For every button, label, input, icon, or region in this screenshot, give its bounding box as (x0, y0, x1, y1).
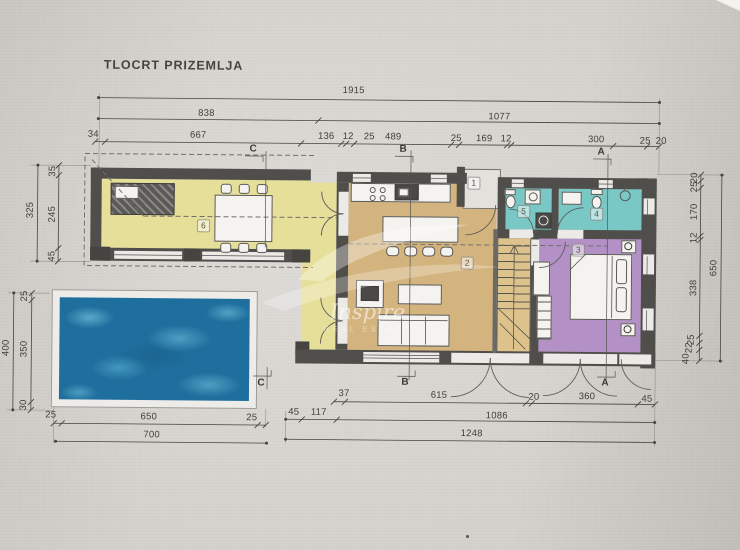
kitchen-sink-basin (399, 188, 409, 196)
dim-label: 20 (528, 393, 539, 403)
dim-label: 667 (190, 131, 207, 141)
toilet-tank (591, 189, 603, 195)
dim-label: 40 (681, 353, 691, 364)
window (431, 175, 447, 183)
section-marker-b-top: B (399, 144, 406, 155)
wing-window-1 (114, 251, 182, 260)
dim-label: 489 (385, 132, 402, 142)
toilet-bowl (506, 195, 516, 208)
dim-label: 45 (47, 251, 57, 262)
dim-label: 169 (476, 134, 493, 144)
watermark-script-text: Inspire (330, 300, 405, 325)
dim-label: 350 (20, 341, 30, 358)
outdoor-sink (115, 186, 139, 199)
column (90, 247, 110, 261)
dim-label: 25 (20, 290, 30, 301)
dim-label: 650 (140, 412, 157, 422)
stairs-treads (497, 237, 532, 309)
door-opening (557, 230, 583, 239)
room-label-3: 3 (572, 244, 585, 257)
section-marker-b-bottom: B (401, 377, 408, 388)
dim-label: 22 (685, 342, 695, 353)
room-label-2: 2 (461, 257, 474, 270)
dim-label: 25 (246, 413, 257, 423)
door-opening (543, 354, 617, 365)
dim-label: 615 (431, 391, 448, 401)
dining-chair (257, 184, 268, 194)
dim-label: 20 (656, 137, 667, 147)
dim-label: 25 (640, 137, 651, 147)
photo-corner-fold (716, 0, 740, 11)
window (643, 254, 654, 274)
room-label-1: 1 (467, 177, 480, 190)
dim-label: 650 (709, 260, 719, 277)
window (643, 308, 654, 330)
dim-label: 300 (588, 135, 605, 145)
dim-label: 12 (690, 232, 700, 243)
dim-label: 25 (45, 410, 56, 420)
door-opening (451, 353, 529, 364)
dining-chair (238, 243, 249, 253)
dim-label: 1077 (488, 112, 510, 122)
dim-label: 25 (451, 134, 462, 144)
bath-divider-wall (551, 187, 558, 234)
plan-title: TLOCRT PRIZEMLJA (104, 58, 244, 73)
dim-label: 30 (19, 399, 29, 410)
section-marker-a-top: A (597, 146, 604, 157)
dim-label: 12 (501, 134, 512, 144)
dim-label: 245 (48, 206, 58, 223)
stove-burner (380, 195, 386, 201)
window (644, 198, 655, 214)
dining-chair (220, 243, 231, 253)
column (292, 249, 310, 262)
watermark-caps-text: REAL ESTATE (324, 324, 412, 334)
section-marker-c-top: C (249, 143, 256, 154)
lamp-icon (624, 325, 632, 333)
door-opening (338, 192, 348, 236)
kitchen-island (382, 216, 458, 243)
washbasin-bowl (529, 192, 538, 201)
stairs-winders (496, 309, 530, 353)
door-opening (619, 354, 651, 364)
dust-speck (466, 535, 469, 538)
dim-label: 700 (143, 430, 160, 440)
bar-stool (440, 247, 453, 257)
dining-chair (221, 184, 232, 194)
window (599, 180, 613, 188)
lamp-icon (624, 242, 632, 250)
window (512, 179, 524, 187)
dim-label: 12 (343, 132, 354, 142)
dim-label: 45 (641, 395, 652, 405)
dining-table (214, 195, 272, 243)
bar-stool (404, 246, 417, 256)
pillow (616, 259, 627, 284)
dim-label: 25 (690, 181, 700, 192)
dim-label: 136 (318, 132, 335, 142)
room-label-5: 5 (517, 205, 530, 218)
sliding-window (363, 352, 439, 363)
dim-label: 838 (198, 109, 215, 119)
room-label-6: 6 (197, 219, 210, 232)
dim-label: 45 (288, 408, 299, 418)
door-opening (509, 229, 533, 238)
dim-label: 1915 (343, 86, 365, 96)
dim-label: 338 (689, 280, 699, 297)
dim-label: 117 (311, 408, 327, 418)
section-marker-c-bottom: C (257, 378, 264, 389)
dim-label: 34 (88, 130, 99, 140)
pillow (616, 287, 627, 312)
dim-label: 37 (338, 389, 349, 399)
pool-water (59, 297, 250, 401)
shower-head-icon (620, 190, 631, 201)
tv-screen (361, 286, 379, 301)
room-label-4: 4 (590, 208, 603, 221)
porch-wall (457, 167, 465, 207)
dim-label: 25 (364, 132, 375, 142)
wing-wall-top (91, 168, 311, 181)
dim-label: 1248 (461, 429, 483, 439)
column (184, 248, 200, 261)
window (353, 174, 371, 182)
stove-burner (370, 187, 376, 193)
dining-chair (256, 243, 267, 253)
wardrobe (536, 295, 551, 339)
floor-plan-photo: TLOCRT PRIZEMLJA (0, 0, 740, 550)
dim-label: 1086 (486, 411, 508, 421)
bar-stool (386, 246, 399, 256)
stove-burner (370, 195, 376, 201)
section-marker-a-bottom: A (601, 378, 608, 389)
bar-stool (422, 246, 435, 256)
dim-label: 35 (48, 166, 58, 177)
dim-label: 360 (579, 392, 596, 402)
washbasin (562, 192, 582, 205)
dim-label: 400 (2, 340, 12, 357)
dresser (533, 261, 550, 295)
dim-label: 170 (690, 204, 700, 221)
floor-plan-drawing: TLOCRT PRIZEMLJA (0, 0, 740, 550)
dim-label: 325 (26, 202, 36, 219)
stove-burner (380, 187, 386, 193)
washer-drum (538, 215, 548, 225)
dining-chair (239, 184, 250, 194)
